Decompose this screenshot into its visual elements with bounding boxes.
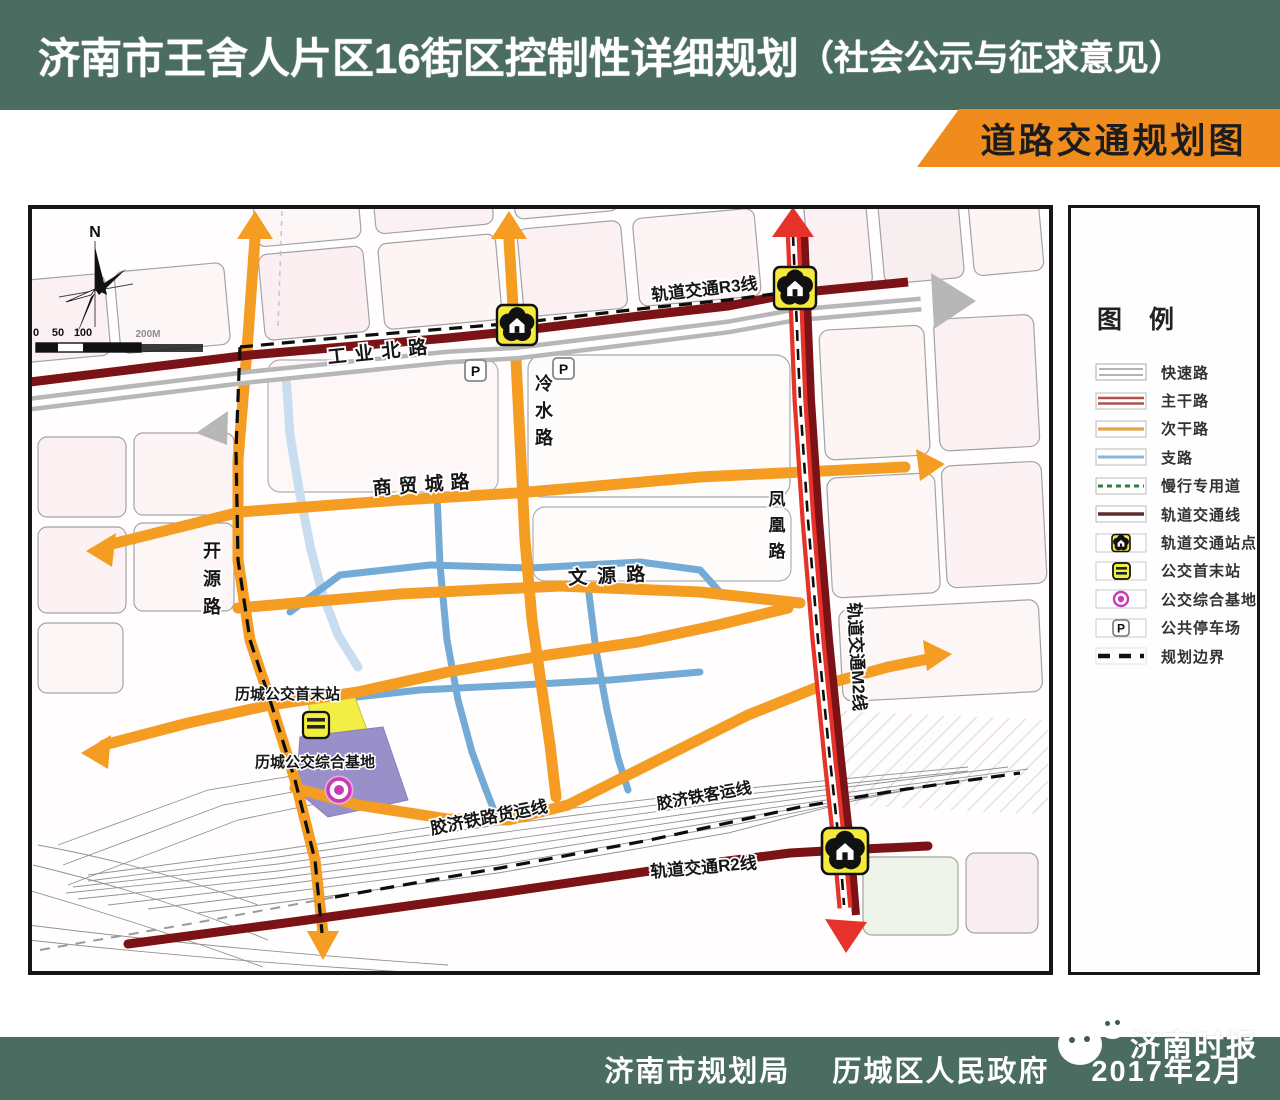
planning-map: P P 轨道交通R3线 工业北路 冷水路 商贸城路 文源路 开源路 凤凰路 轨道…: [28, 205, 1053, 975]
svg-text:P: P: [1117, 621, 1125, 635]
legend-item-parking: P 公共停车场: [1095, 614, 1257, 642]
svg-text:0: 0: [33, 327, 39, 339]
header-banner: 济南市王舍人片区16街区控制性详细规划（社会公示与征求意见）: [0, 0, 1280, 110]
road-lengshui-label: 冷水路: [535, 373, 554, 448]
boundary-legend-icon: [1095, 646, 1147, 666]
rail-station-icon: [822, 828, 868, 874]
svg-text:50: 50: [52, 327, 64, 339]
legend-item-rail-line: 轨道交通线: [1095, 500, 1257, 528]
road-fenghuang-label: 凤凰路: [769, 490, 787, 561]
footer-agency-2: 历城区人民政府: [832, 1048, 1049, 1090]
legend-item-arterial: 主干路: [1095, 386, 1257, 414]
legend-item-bus-terminal: 公交首末站: [1095, 557, 1257, 585]
legend-items: 快速路 主干路 次干路 支路 慢行专用道 轨道交通线 轨道交通站点 公交首末站: [1095, 358, 1257, 670]
svg-text:P: P: [559, 361, 568, 377]
page-title: 济南市王舍人片区16街区控制性详细规划: [38, 25, 799, 86]
legend-item-secondary: 次干路: [1095, 415, 1257, 443]
svg-text:100: 100: [74, 327, 92, 339]
bus-terminal-legend-icon: [1095, 560, 1147, 582]
map-type-banner: 道路交通规划图: [917, 109, 1280, 167]
slow-lane-legend-icon: [1095, 476, 1147, 496]
bus-base-label: 历城公交综合基地: [255, 753, 375, 771]
rail-station-legend-icon: [1095, 532, 1147, 554]
parking-legend-icon: P: [1095, 617, 1147, 639]
north-label: N: [89, 224, 101, 241]
bus-terminal-icon: [303, 712, 329, 738]
legend-item-slow-lane: 慢行专用道: [1095, 472, 1257, 500]
legend-title: 图 例: [1097, 300, 1257, 336]
bus-terminal-label: 历城公交首末站: [235, 685, 340, 703]
page-title-subnote: （社会公示与征求意见）: [799, 30, 1184, 81]
parking-icon: P: [465, 360, 486, 381]
secondary-legend-icon: [1095, 419, 1147, 439]
legend-item-bus-base: 公交综合基地: [1095, 585, 1257, 613]
newspaper-watermark: 济南时报: [1052, 1008, 1267, 1068]
footer-agency-1: 济南市规划局: [604, 1048, 790, 1090]
rail-station-icon: [774, 267, 816, 309]
branch-legend-icon: [1095, 447, 1147, 467]
map-canvas: P P 轨道交通R3线 工业北路 冷水路 商贸城路 文源路 开源路 凤凰路 轨道…: [28, 205, 1053, 975]
expressway-legend-icon: [1095, 362, 1147, 382]
watermark-text: 济南时报: [1130, 1021, 1258, 1065]
svg-text:200M: 200M: [135, 329, 160, 340]
arterial-legend-icon: [1095, 391, 1147, 411]
legend-panel: 图 例 快速路 主干路 次干路 支路 慢行专用道 轨道交通线 轨道交通站点: [1068, 205, 1260, 975]
map-type-label: 道路交通规划图: [980, 113, 1246, 164]
bus-base-legend-icon: [1095, 588, 1147, 610]
rail-station-icon: [497, 305, 537, 345]
parking-icon: P: [553, 358, 574, 379]
legend-item-rail-station: 轨道交通站点: [1095, 528, 1257, 556]
svg-text:P: P: [471, 363, 480, 379]
legend-item-boundary: 规划边界: [1095, 642, 1257, 670]
wechat-bubble-small-icon: [1098, 1012, 1127, 1039]
legend-item-branch: 支路: [1095, 443, 1257, 471]
rail-line-legend-icon: [1095, 504, 1147, 524]
road-kaiyuan-label: 开源路: [203, 541, 222, 617]
city-blocks-southeast: [863, 853, 1038, 935]
bus-base-icon: [326, 777, 353, 804]
wechat-bubble-icon: [1058, 1024, 1102, 1065]
legend-item-expressway: 快速路: [1095, 358, 1257, 386]
